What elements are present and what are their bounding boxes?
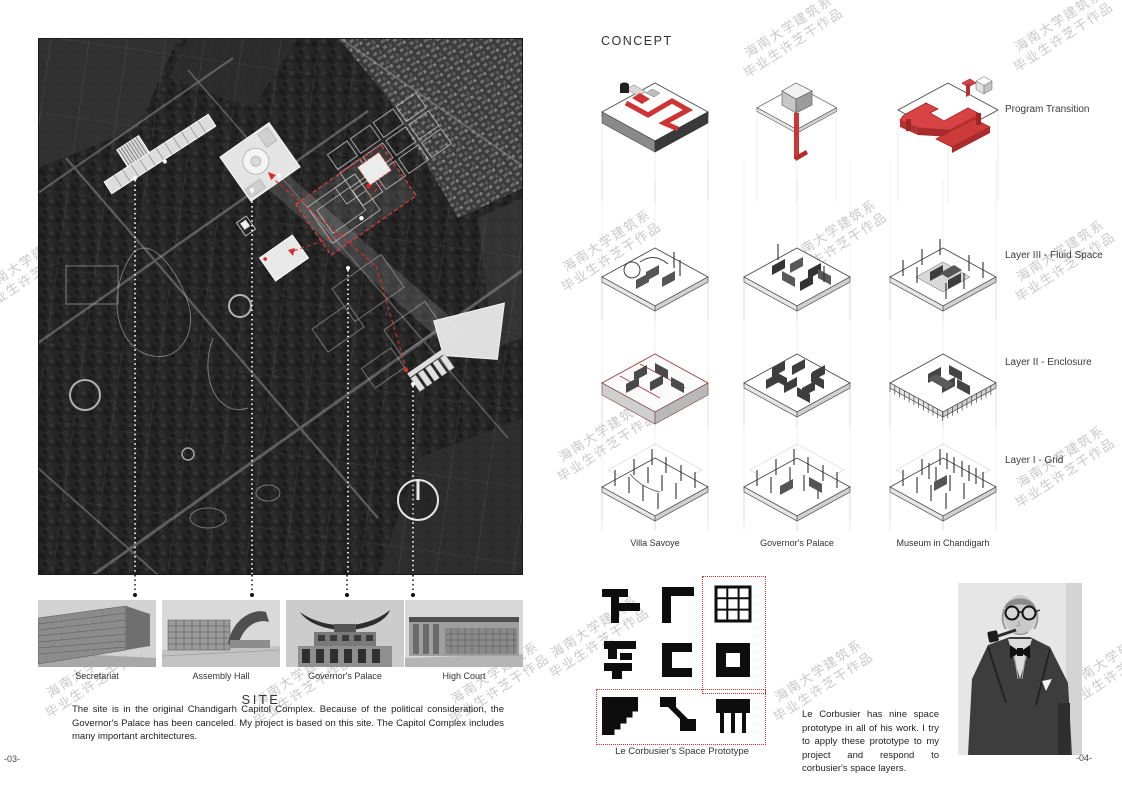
- axon-villa-grid: [590, 430, 720, 532]
- photo-governors-palace: [286, 600, 404, 667]
- photo-caption: Secretariat: [38, 671, 156, 681]
- glyph-ramp-shape-icon: [654, 693, 700, 739]
- glyph-nine-grid-icon: [710, 581, 756, 627]
- photo-caption: High Court: [405, 671, 523, 681]
- axon-governors-enclosure: [732, 326, 862, 428]
- glyph-gamma-shape-icon: [654, 581, 700, 627]
- glyph-stair-corner-icon: [598, 693, 644, 739]
- photo-high-court: [405, 600, 523, 667]
- photo-caption: Governor's Palace: [286, 671, 404, 681]
- site-body: The site is in the original Chandigarh C…: [72, 703, 504, 744]
- page-number-left: -03-: [4, 754, 20, 764]
- prototype-caption: Le Corbusier's Space Prototype: [592, 746, 772, 757]
- portfolio-board: 海南大学建筑系毕业生许芝干作品海南大学建筑系毕业生许芝干作品海南大学建筑系毕业生…: [0, 0, 1122, 793]
- leader-lines: [38, 575, 523, 599]
- column-label-museum-chandigarh: Museum in Chandigarh: [883, 538, 1003, 548]
- axon-governors-grid: [732, 430, 862, 532]
- corbusier-portrait: [958, 583, 1082, 755]
- column-label-governors-palace: Governor's Palace: [737, 538, 857, 548]
- axon-museum-fluid: [878, 220, 1008, 322]
- glyph-c-shape-icon: [654, 637, 700, 683]
- column-label-villa-savoye: Villa Savoye: [595, 538, 715, 548]
- axon-museum-program: [878, 55, 1008, 205]
- watermark: 海南大学建筑系毕业生许芝干作品: [772, 629, 887, 719]
- row-label-layer1: Layer I - Grid: [1005, 455, 1117, 466]
- axon-museum-enclosure: [878, 326, 1008, 428]
- row-label-layer2: Layer II - Enclosure: [1005, 357, 1117, 368]
- site-map-image: [38, 38, 523, 575]
- glyph-tee-shape-icon: [598, 581, 644, 627]
- glyph-square-ring-icon: [710, 637, 756, 683]
- glyph-beam-shape-icon: [598, 637, 644, 683]
- north-indicator-icon: [398, 479, 438, 520]
- photo-assembly-hall: [162, 600, 280, 667]
- concept-title: CONCEPT: [601, 34, 673, 48]
- site-map: [38, 38, 523, 575]
- axon-villa-fluid: [590, 220, 720, 322]
- corbusier-body: Le Corbusier has nine space prototype in…: [802, 708, 939, 776]
- page-number-right: -04-: [1076, 753, 1092, 763]
- axon-museum-grid: [878, 430, 1008, 532]
- photo-secretariat: [38, 600, 156, 667]
- row-label-program: Program Transition: [1005, 104, 1117, 115]
- axon-villa-enclosure: [590, 326, 720, 428]
- watermark: 海南大学建筑系毕业生许芝干作品: [1012, 0, 1122, 69]
- axon-governors-program: [732, 55, 862, 205]
- axon-governors-fluid: [732, 220, 862, 322]
- glyph-slab-on-legs-icon: [710, 693, 756, 739]
- photo-caption: Assembly Hall: [162, 671, 280, 681]
- prototype-diagram: [598, 581, 756, 739]
- row-label-layer3: Layer III - Fluid Space: [1005, 250, 1117, 261]
- axon-villa-program: [590, 55, 720, 205]
